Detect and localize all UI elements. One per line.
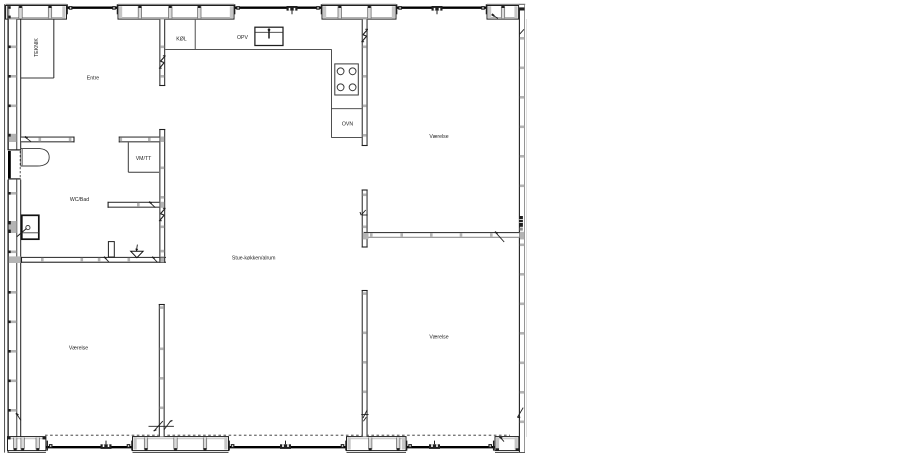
svg-text:Stue-køkken/alrum: Stue-køkken/alrum bbox=[232, 256, 276, 262]
svg-text:Værelse: Værelse bbox=[69, 346, 88, 352]
svg-text:Værelse: Værelse bbox=[429, 335, 448, 341]
svg-text:VM/TT: VM/TT bbox=[136, 156, 152, 162]
svg-text:KØL: KØL bbox=[176, 37, 186, 43]
svg-text:OPV: OPV bbox=[237, 35, 248, 41]
svg-text:Værelse: Værelse bbox=[429, 134, 448, 140]
svg-text:OVN: OVN bbox=[342, 122, 353, 128]
svg-text:WC/Bad: WC/Bad bbox=[70, 197, 89, 203]
svg-text:TEKNIK: TEKNIK bbox=[34, 38, 40, 57]
svg-text:Entre: Entre bbox=[87, 76, 100, 82]
